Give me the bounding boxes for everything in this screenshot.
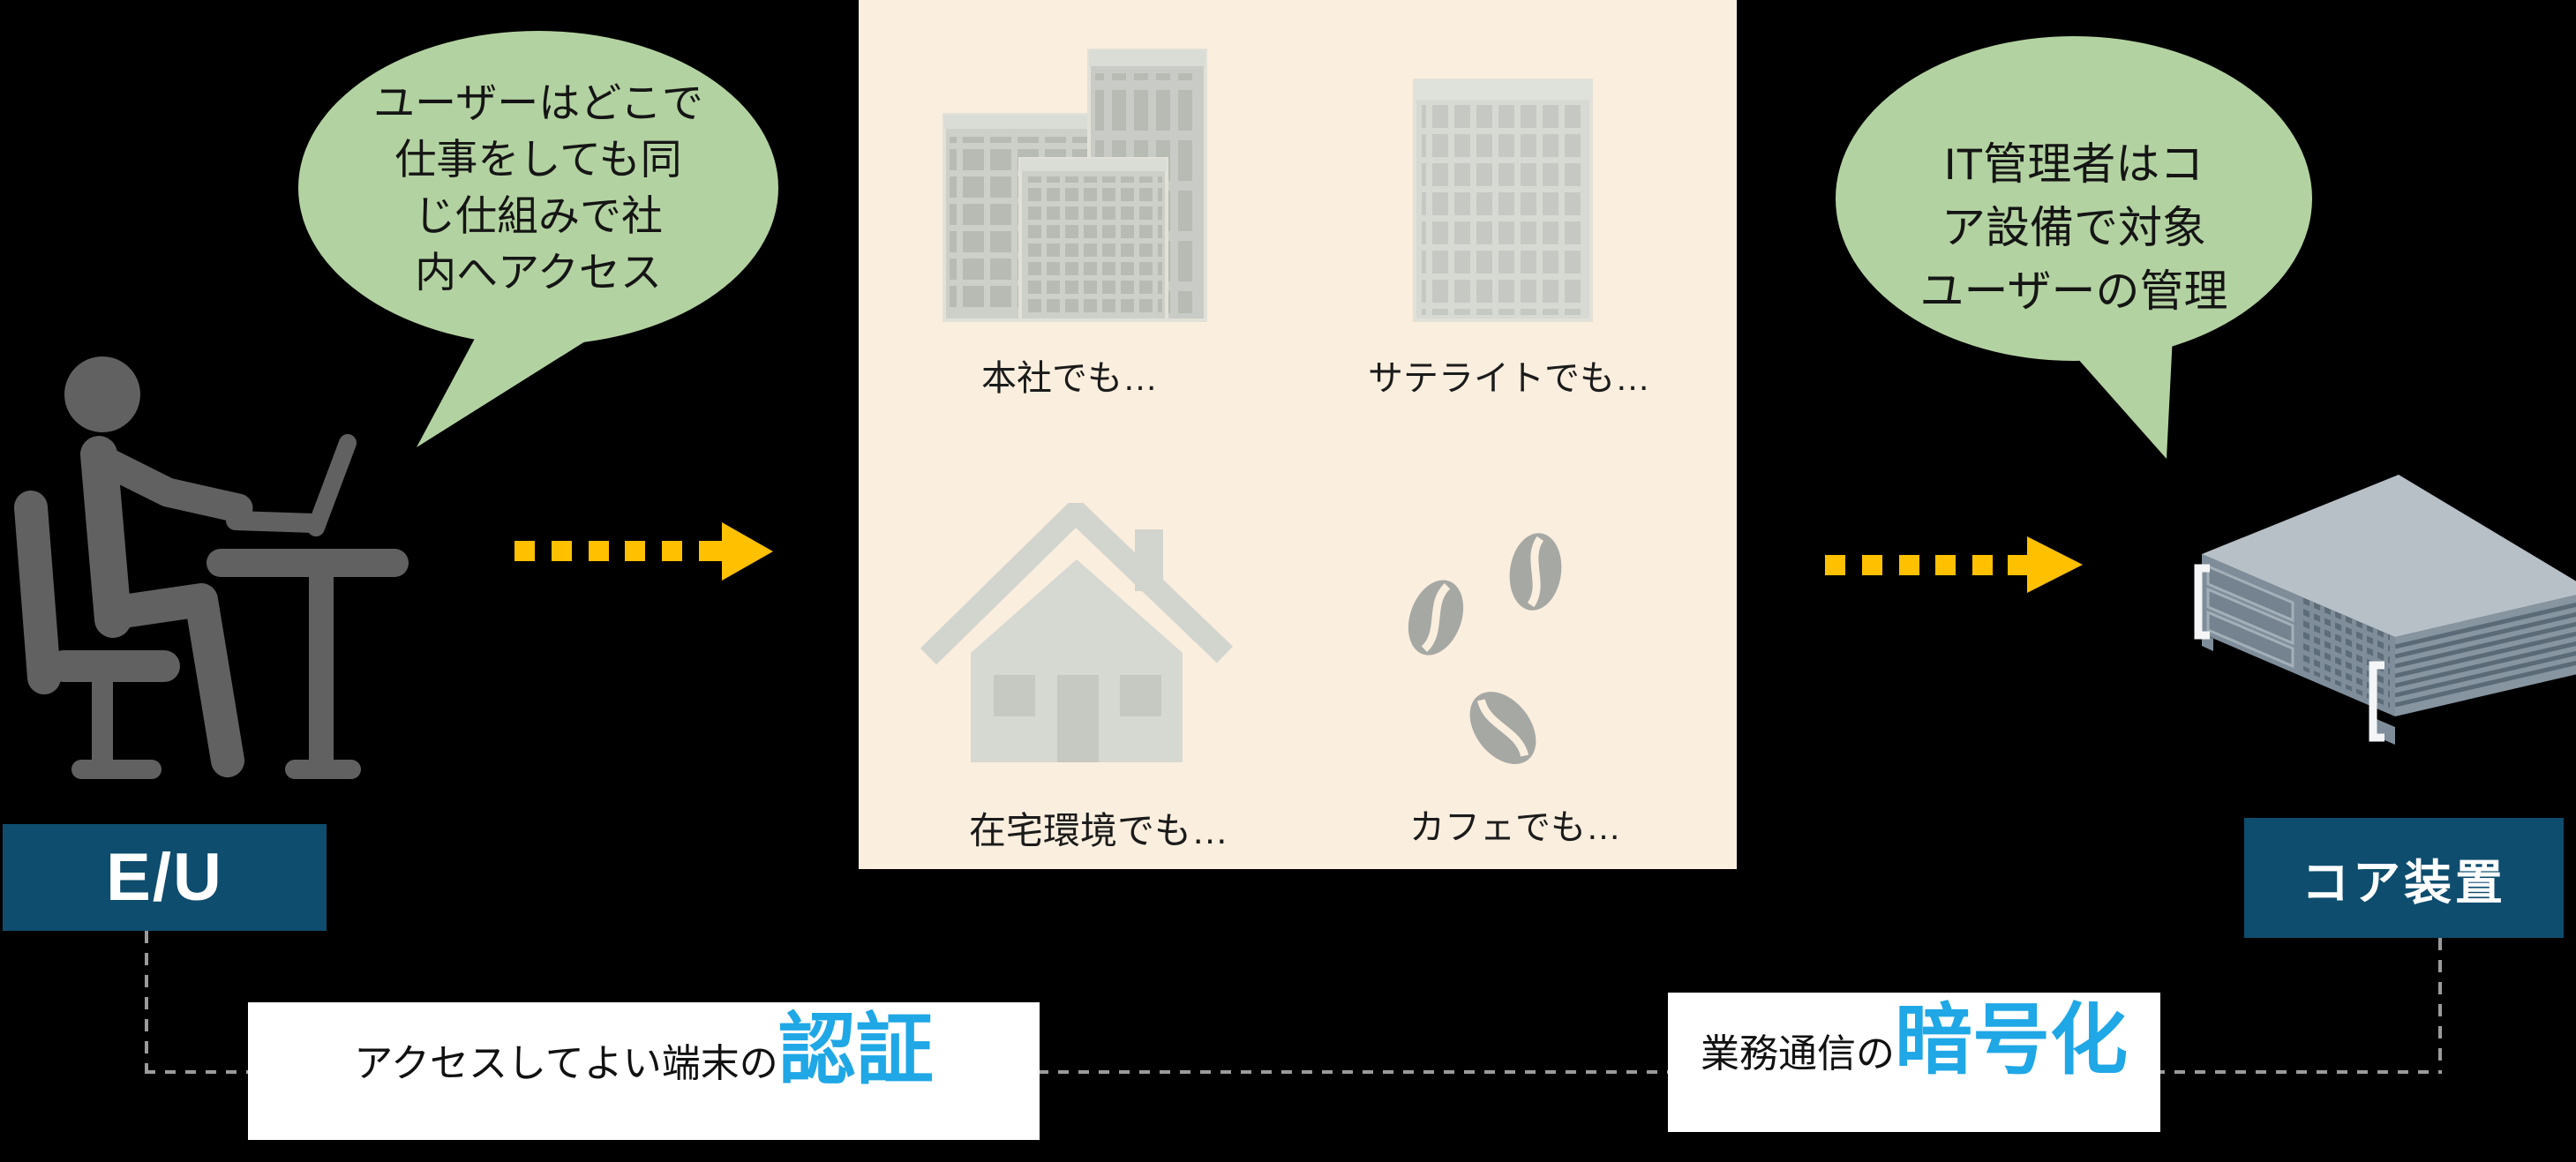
bubble-line: 仕事をしても同 (318, 131, 759, 188)
bubble-line: IT管理者はコ (1853, 132, 2294, 196)
connector-line-core-vertical (2438, 938, 2442, 1072)
home-icon (918, 503, 1235, 768)
cafe-label: カフェでも… (1383, 798, 1648, 850)
headquarters-label: 本社でも… (937, 349, 1202, 401)
core-device-label: コア装置 (2244, 818, 2564, 938)
end-user-label: E/U (3, 824, 327, 931)
bubble-line: じ仕組みで社 (318, 188, 759, 244)
connector-line-eu-vertical (145, 931, 148, 1072)
bubble-line: 内へアクセス (318, 244, 759, 301)
rack-server-icon (2187, 468, 2576, 750)
person-at-desk-icon (0, 335, 415, 785)
encryption-highlight-text: 暗号化 (1895, 1001, 2128, 1079)
satellite-building-icon (1410, 76, 1596, 325)
dashed-arrow-right-icon (1818, 525, 2092, 604)
auth-highlight-text: 認証 (778, 1011, 934, 1089)
core-device-label-text: コア装置 (2302, 843, 2506, 913)
end-user-bubble-text: ユーザーはどこで 仕事をしても同 じ仕組みで社 内へアクセス (318, 75, 759, 301)
auth-prefix-text: アクセスしてよい端末の (354, 1031, 777, 1088)
cafe-beans-icon (1386, 521, 1597, 776)
callout-device-authentication: アクセスしてよい端末の認証 (248, 1002, 1040, 1140)
callout-encryption: 業務通信の暗号化 (1668, 993, 2160, 1132)
diagram-canvas: 本社でも… サテライトでも… 在宅環境でも… (0, 0, 2576, 1162)
home-label: 在宅環境でも… (966, 801, 1231, 855)
headquarters-buildings-icon (935, 40, 1218, 331)
bubble-line: ユーザーの管理 (1853, 259, 2294, 323)
end-user-label-text: E/U (106, 839, 223, 916)
dashed-arrow-left-icon (507, 516, 790, 587)
bubble-line: ア設備で対象 (1853, 196, 2294, 259)
core-bubble-text: IT管理者はコ ア設備で対象 ユーザーの管理 (1853, 132, 2294, 323)
encryption-prefix-text: 業務通信の (1701, 1022, 1895, 1078)
bubble-line: ユーザーはどこで (318, 75, 759, 131)
satellite-label: サテライトでも… (1355, 349, 1664, 401)
